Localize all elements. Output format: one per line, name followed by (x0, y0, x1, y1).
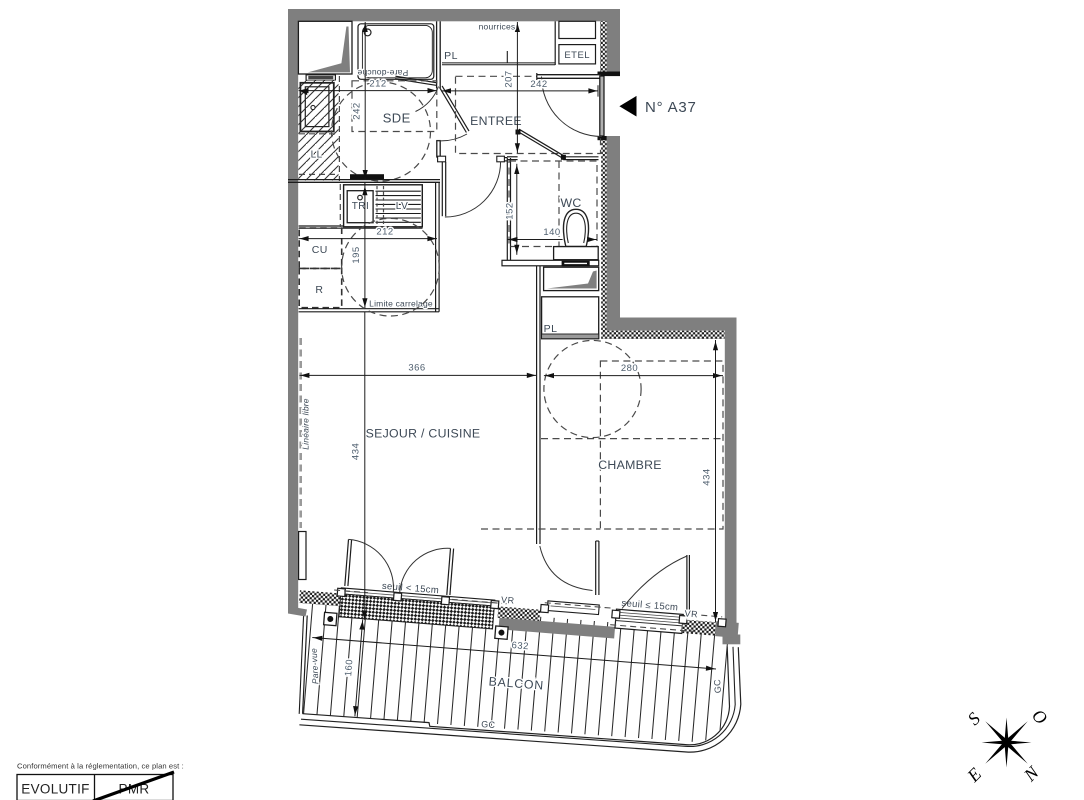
svg-text:VR: VR (501, 595, 515, 606)
svg-text:VR: VR (684, 608, 698, 619)
svg-text:PL: PL (444, 50, 458, 62)
svg-text:SEJOUR / CUISINE: SEJOUR / CUISINE (366, 427, 481, 441)
svg-text:LL: LL (311, 150, 323, 161)
svg-text:212: 212 (369, 79, 386, 90)
svg-text:434: 434 (702, 468, 713, 485)
svg-text:Conformément à la réglementati: Conformément à la réglementation, ce pla… (17, 762, 184, 771)
svg-text:ENTREE: ENTREE (470, 114, 522, 128)
svg-text:434: 434 (351, 443, 362, 460)
svg-text:LV: LV (396, 201, 409, 212)
svg-text:160: 160 (343, 659, 355, 677)
svg-text:CHAMBRE: CHAMBRE (598, 458, 662, 472)
svg-text:207: 207 (503, 70, 514, 87)
svg-text:ETEL: ETEL (564, 50, 590, 61)
svg-text:GC: GC (712, 679, 723, 694)
svg-text:CU: CU (312, 244, 328, 256)
svg-text:195: 195 (351, 246, 362, 263)
svg-text:152: 152 (505, 202, 516, 219)
svg-text:Pare-vue: Pare-vue (309, 648, 321, 685)
svg-text:632: 632 (511, 640, 529, 652)
svg-text:SDE: SDE (383, 110, 411, 125)
svg-text:PL: PL (544, 323, 558, 335)
svg-text:GC: GC (481, 719, 496, 730)
svg-text:212: 212 (376, 227, 393, 238)
svg-text:WC: WC (560, 196, 581, 210)
svg-text:TRI: TRI (352, 201, 370, 212)
svg-text:242: 242 (352, 102, 363, 119)
svg-text:366: 366 (408, 362, 425, 373)
svg-text:nourrices: nourrices (479, 22, 516, 32)
svg-text:242: 242 (530, 79, 547, 90)
svg-text:140: 140 (543, 227, 560, 238)
svg-text:280: 280 (621, 363, 638, 374)
svg-text:R: R (315, 284, 323, 296)
svg-text:EVOLUTIF: EVOLUTIF (21, 782, 89, 797)
svg-text:N° A37: N° A37 (645, 99, 697, 116)
svg-text:Linéaire libre: Linéaire libre (300, 398, 310, 450)
